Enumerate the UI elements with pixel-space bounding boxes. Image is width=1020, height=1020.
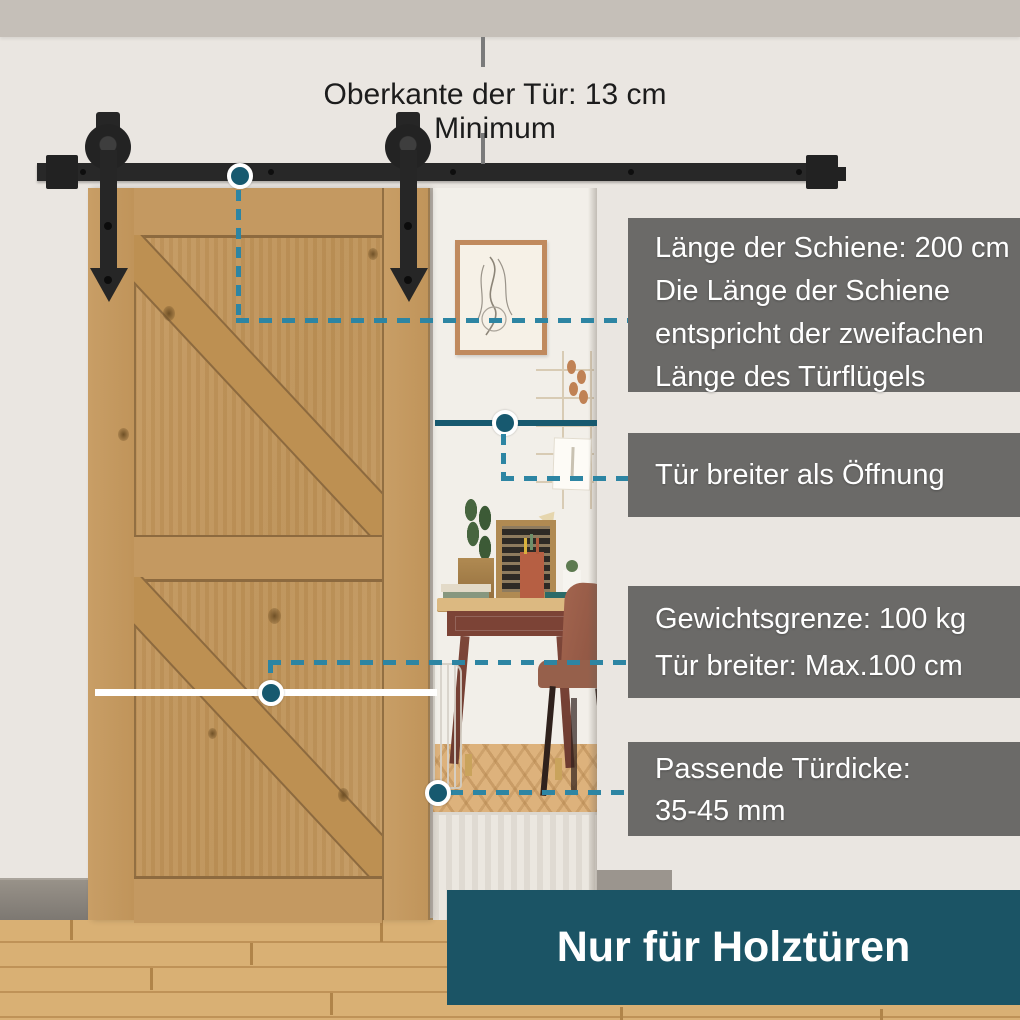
marker-dot-door-width bbox=[258, 680, 284, 706]
floor-joint bbox=[150, 968, 153, 990]
track-bolt bbox=[268, 169, 274, 175]
strap-bolt bbox=[404, 276, 412, 284]
footer-banner: Nur für Holztüren bbox=[447, 890, 1020, 1005]
pencil-cup bbox=[520, 552, 544, 598]
door-rail-top bbox=[134, 188, 382, 238]
track-bolt bbox=[450, 169, 456, 175]
floor-joint bbox=[380, 920, 383, 942]
barn-door bbox=[88, 188, 428, 920]
callout-panel-track-length: Länge der Schiene: 200 cm Die Länge der … bbox=[628, 218, 1020, 392]
callout-panel-thickness: Passende Türdicke: 35-45 mm bbox=[628, 742, 1020, 836]
desk-leg-brass-tip bbox=[555, 758, 562, 780]
leader-line bbox=[501, 476, 628, 481]
hanger-strap-right bbox=[400, 150, 417, 270]
marker-dot-thickness bbox=[425, 780, 451, 806]
wood-knot bbox=[118, 428, 129, 441]
strap-bolt bbox=[404, 222, 412, 230]
door-rail-bottom bbox=[134, 876, 382, 923]
floor-joint bbox=[880, 1009, 883, 1020]
door-rail-middle bbox=[134, 535, 382, 582]
floor-joint bbox=[620, 1007, 623, 1020]
wood-knot bbox=[268, 608, 281, 624]
leader-line bbox=[450, 790, 628, 795]
hanger-arrow-right bbox=[390, 268, 428, 302]
wire-basket bbox=[433, 663, 462, 789]
wall-art-frame bbox=[455, 240, 547, 355]
door-panel-bottom bbox=[134, 577, 382, 876]
callout-text: 35-45 mm bbox=[628, 790, 1020, 832]
door-brace-bottom bbox=[134, 577, 382, 876]
ceiling-band bbox=[0, 0, 1020, 37]
hanger-arrow-left bbox=[90, 268, 128, 302]
opening-shadow bbox=[588, 188, 597, 920]
callout-text: Gewichtsgrenze: 100 kg bbox=[628, 596, 1020, 643]
top-clearance-note: Oberkante der Tür: 13 cm Minimum bbox=[260, 78, 730, 146]
callout-panel-weight: Gewichtsgrenze: 100 kg Tür breiter: Max.… bbox=[628, 586, 1020, 698]
callout-text: Länge der Schiene: 200 cm bbox=[628, 227, 1020, 270]
marker-dot-track bbox=[227, 163, 253, 189]
callout-text: Passende Türdicke: bbox=[628, 748, 1020, 790]
desk-apron bbox=[447, 611, 579, 636]
sliding-track-rail bbox=[37, 163, 835, 181]
wood-knot bbox=[208, 728, 217, 739]
callout-text: Die Länge der Schiene bbox=[628, 270, 1020, 313]
callout-text: Länge des Türflügels bbox=[628, 356, 1020, 399]
book-stack bbox=[441, 584, 491, 592]
floor-joint bbox=[330, 993, 333, 1015]
track-end-stop-left bbox=[46, 155, 78, 189]
floor-joint bbox=[250, 943, 253, 965]
baseboard bbox=[0, 878, 90, 920]
leader-line bbox=[268, 660, 628, 665]
marker-dot-opening bbox=[492, 410, 518, 436]
track-bolt bbox=[628, 169, 634, 175]
wood-knot bbox=[338, 788, 349, 802]
desk-leg-brass-tip bbox=[465, 754, 472, 776]
callout-panel-opening: Tür breiter als Öffnung bbox=[628, 433, 1020, 517]
floor-joint bbox=[70, 918, 73, 940]
track-bolt bbox=[80, 169, 86, 175]
door-brace-top bbox=[134, 235, 382, 535]
strap-bolt bbox=[104, 222, 112, 230]
door-opening-room-view bbox=[433, 188, 597, 920]
footer-banner-text: Nur für Holztüren bbox=[557, 923, 911, 972]
callout-text: Tür breiter: Max.100 cm bbox=[628, 643, 1020, 690]
door-edge-shadow bbox=[428, 188, 433, 920]
callout-text: entspricht der zweifachen bbox=[628, 313, 1020, 356]
track-end-tab bbox=[836, 167, 846, 181]
wood-knot bbox=[163, 306, 175, 321]
product-infographic: Oberkante der Tür: 13 cm Minimum Länge d… bbox=[0, 0, 1020, 1020]
track-end-stop-right bbox=[806, 155, 838, 189]
track-bolt bbox=[796, 169, 802, 175]
wood-knot bbox=[368, 248, 378, 260]
leader-line bbox=[236, 318, 628, 323]
strap-bolt bbox=[104, 276, 112, 284]
door-panel-top bbox=[134, 235, 382, 535]
leader-line bbox=[501, 434, 506, 478]
baseboard bbox=[592, 870, 672, 892]
chair-leg bbox=[571, 698, 577, 793]
braided-plant bbox=[463, 498, 493, 564]
memo-card bbox=[552, 437, 592, 490]
dimension-line-upper bbox=[481, 37, 485, 67]
leader-line bbox=[236, 190, 241, 320]
hanger-strap-left bbox=[100, 150, 117, 270]
callout-text: Tür breiter als Öffnung bbox=[628, 433, 1020, 517]
